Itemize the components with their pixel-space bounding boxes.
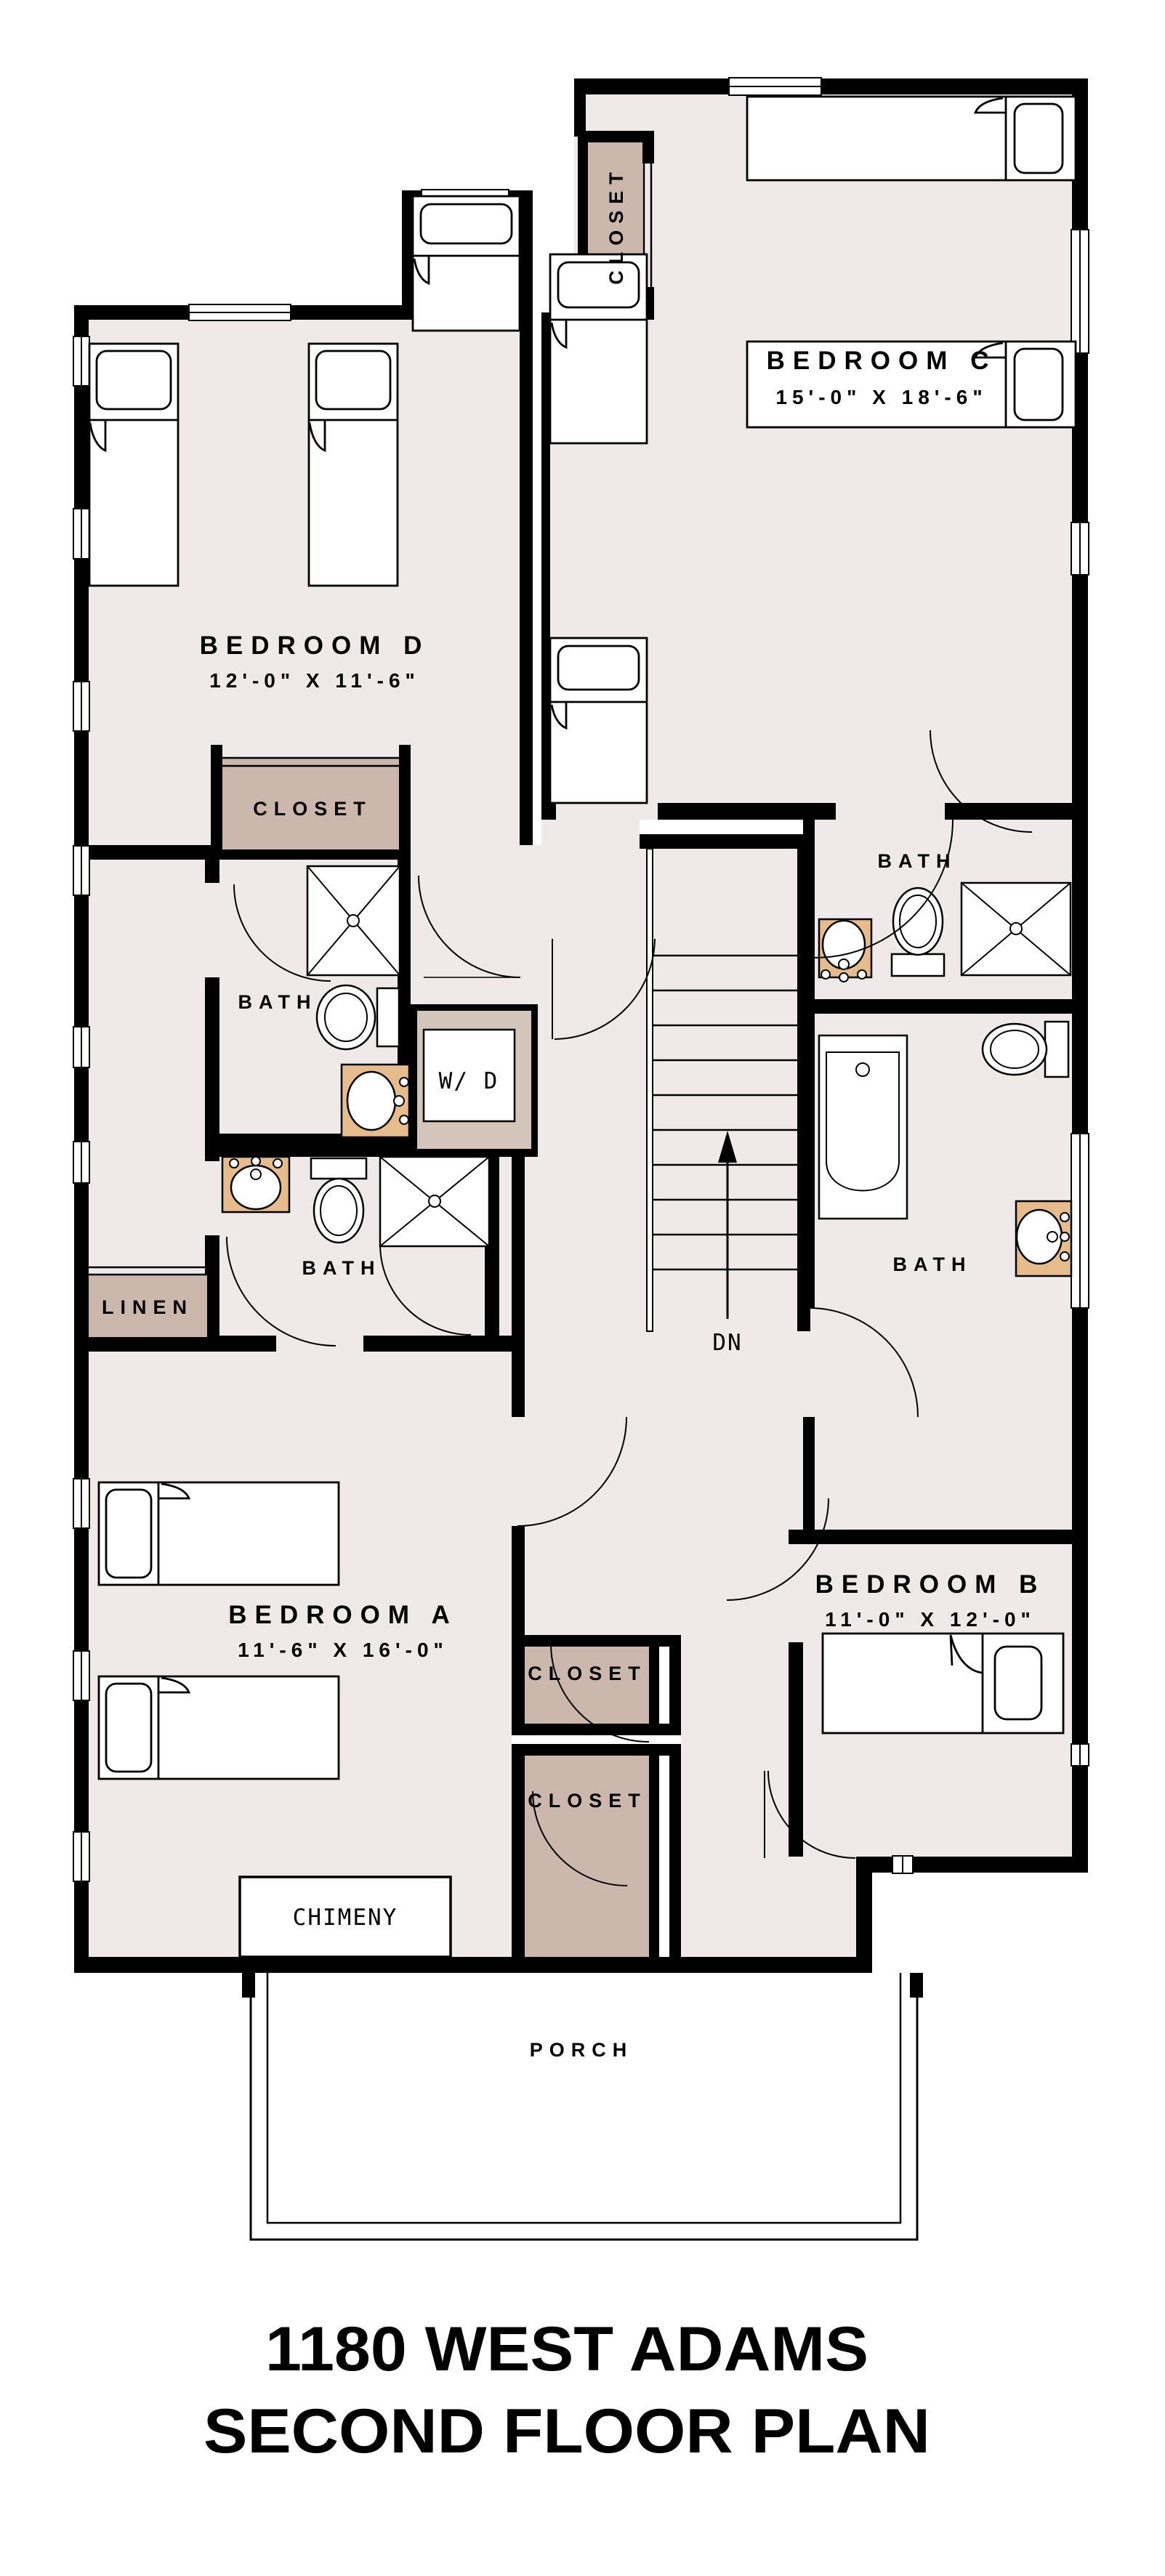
wall-segment <box>74 1183 89 1479</box>
wall-white-slot <box>512 1735 681 1744</box>
bed-icon <box>413 196 520 331</box>
wall-segment <box>1072 1766 1088 1873</box>
porch-outer-line <box>251 1973 917 2240</box>
wall-segment <box>74 1881 89 1973</box>
floor-plan-page: BEDROOM C 15'-0" X 18'-6" BEDROOM D 12'-… <box>0 0 1165 2576</box>
bed-icon <box>99 1482 339 1585</box>
toilet-icon <box>317 985 399 1049</box>
bed-icon <box>89 344 178 586</box>
wall-segment <box>205 1157 219 1161</box>
wall-segment <box>574 78 586 137</box>
floor-b-vestibule <box>789 1857 856 1957</box>
floor-bedroom-c <box>574 94 1072 820</box>
wall-segment <box>821 78 1088 94</box>
window-icon <box>73 1832 89 1881</box>
wall-segment <box>512 1744 681 1756</box>
window-icon <box>73 1651 89 1700</box>
wall-segment <box>669 1635 681 1971</box>
wall-segment <box>803 1417 815 1530</box>
window-icon <box>73 1027 89 1067</box>
window-icon <box>73 336 89 386</box>
wall-white-band <box>640 820 810 834</box>
room-label-linen: LINEN <box>102 1296 193 1318</box>
room-dims-bedroom-c: 15'-0" X 18'-6" <box>775 386 987 408</box>
room-label-closet-mid-upper: CLOSET <box>528 1663 647 1684</box>
wall-segment <box>945 803 1088 820</box>
wall-segment <box>74 1336 276 1352</box>
wall-segment <box>399 745 411 860</box>
room-label-chimney: CHIMENY <box>293 1905 398 1931</box>
wall-segment <box>803 999 1088 1014</box>
wall-segment <box>74 386 89 509</box>
sink-icon <box>1016 1201 1071 1276</box>
wall-segment <box>913 1857 1088 1873</box>
room-label-bath-lower-left: BATH <box>302 1257 382 1279</box>
window-icon <box>1071 230 1089 353</box>
room-label-bedroom-c: BEDROOM C <box>767 347 997 375</box>
room-label-laundry: W/ D <box>439 1068 499 1094</box>
bed-icon <box>309 344 398 586</box>
window-icon <box>73 1142 89 1183</box>
room-label-porch: PORCH <box>530 2039 634 2061</box>
toilet-icon <box>311 1158 366 1243</box>
room-label-closet-mid-lower: CLOSET <box>528 1790 647 1812</box>
room-label-bedroom-b: BEDROOM B <box>815 1570 1046 1599</box>
shower-icon <box>962 883 1071 975</box>
room-dims-bedroom-d: 12'-0" X 11'-6" <box>209 669 420 692</box>
wall-segment <box>1072 575 1088 1134</box>
wall-segment <box>512 1635 681 1647</box>
room-label-bath-upper-right: BATH <box>878 850 957 872</box>
wall-segment <box>363 1336 512 1352</box>
room-label-closet-d: CLOSET <box>253 798 372 820</box>
room-label-bedroom-d: BEDROOM D <box>200 631 430 660</box>
wall-segment <box>520 190 533 845</box>
wall-segment <box>856 1857 892 1873</box>
wall-segment <box>74 895 89 1027</box>
wall-segment <box>291 305 413 320</box>
window-icon <box>73 509 89 559</box>
wall-segment <box>512 1724 681 1735</box>
window-icon <box>1071 1134 1089 1308</box>
wall-segment <box>856 1873 872 1973</box>
wall-segment <box>541 803 556 820</box>
wall-segment <box>211 745 222 860</box>
stair-rail <box>647 849 653 1331</box>
wall-segment <box>402 190 413 320</box>
wall-segment <box>74 1700 89 1832</box>
wall-white-slot <box>659 1639 669 1957</box>
title-line-1: 1180 WEST ADAMS <box>265 2314 868 2384</box>
wall-segment <box>789 1530 1088 1544</box>
shower-icon <box>307 866 400 975</box>
wall-slot-white-1 <box>533 305 541 845</box>
wall-segment <box>541 312 550 803</box>
wall-segment <box>789 1642 803 1857</box>
bed-icon <box>99 1676 339 1779</box>
room-label-bath-lower-right: BATH <box>893 1253 972 1275</box>
wall-segment <box>74 305 189 320</box>
wall-segment <box>74 731 89 846</box>
wall-segment <box>803 820 815 999</box>
wall-segment <box>512 1157 525 1417</box>
room-dims-bedroom-a: 11'-6" X 16'-0" <box>238 1639 448 1661</box>
wall-segment <box>642 131 654 163</box>
wall-segment <box>74 1957 872 1973</box>
window-icon <box>73 682 89 731</box>
plan-title: 1180 WEST ADAMS SECOND FLOOR PLAN <box>203 2314 930 2466</box>
window-icon <box>729 78 821 95</box>
window-icon <box>892 1856 913 1873</box>
exterior-notch-southeast <box>856 1873 1072 1957</box>
wall-segment <box>74 559 89 682</box>
stairs-direction-label: DN <box>712 1330 742 1356</box>
bed-icon <box>550 254 647 443</box>
wall-segment <box>574 78 729 94</box>
title-line-2: SECOND FLOOR PLAN <box>203 2397 930 2466</box>
wall-segment <box>205 977 219 1134</box>
closet-mid-lower-fill <box>525 1756 649 1957</box>
wall-segment <box>1072 1308 1088 1744</box>
sink-icon <box>342 1065 409 1137</box>
wall-segment <box>649 1635 659 1958</box>
room-label-bedroom-a: BEDROOM A <box>228 1601 457 1629</box>
window-icon <box>73 1479 89 1528</box>
porch-outline <box>251 1973 917 2240</box>
window-icon <box>1071 1744 1089 1766</box>
window-icon <box>73 846 89 895</box>
sink-icon <box>222 1157 289 1212</box>
wall-segment <box>803 1014 815 1308</box>
wall-segment <box>640 834 810 849</box>
wall-segment <box>242 1973 255 1998</box>
shower-icon <box>380 1157 489 1246</box>
room-dims-bedroom-b: 11'-0" X 12'-0" <box>825 1608 1036 1631</box>
wall-segment <box>205 860 219 883</box>
room-label-closet-top: CLOSET <box>605 166 627 285</box>
toilet-icon <box>892 888 944 976</box>
wall-segment <box>74 1067 89 1142</box>
toilet-icon <box>983 1022 1068 1077</box>
wall-segment <box>74 1528 89 1651</box>
window-icon <box>1071 522 1089 575</box>
closet-mid-upper-fill <box>525 1647 649 1724</box>
bed-icon <box>747 97 1076 180</box>
porch-inner-line <box>267 1973 900 2223</box>
room-label-bath-upper-left: BATH <box>238 991 318 1013</box>
bathtub-icon <box>819 1035 907 1219</box>
window-icon <box>189 304 291 320</box>
bed-icon <box>550 638 647 803</box>
floor-plan-drawing: BEDROOM C 15'-0" X 18'-6" BEDROOM D 12'-… <box>0 0 1165 2576</box>
sink-icon <box>819 919 871 982</box>
bed-icon <box>823 1634 1063 1733</box>
wall-segment <box>658 803 836 820</box>
